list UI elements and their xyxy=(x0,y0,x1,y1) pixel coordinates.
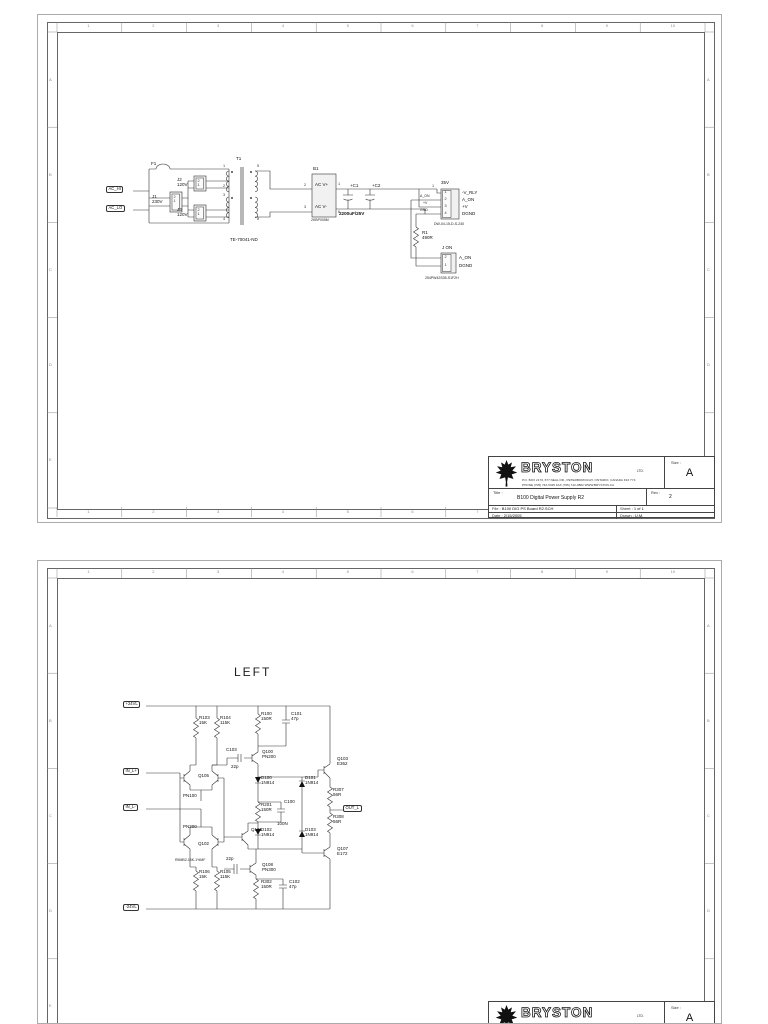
zone-label: 1 xyxy=(87,569,89,574)
file-name: B100 DIG PS Board R2.SCH xyxy=(502,506,554,511)
zone-label: B xyxy=(707,718,710,723)
zone-label: C xyxy=(49,813,52,818)
zone-label: 5 xyxy=(347,569,349,574)
zone-label: B xyxy=(707,172,710,177)
zone-label: 7 xyxy=(476,509,478,514)
zone-label: C xyxy=(49,267,52,272)
zone-label: 7 xyxy=(476,23,478,28)
zone-label: 6 xyxy=(411,569,413,574)
title-label: Title : xyxy=(493,490,503,495)
sheet-number: 1 of 1 xyxy=(634,506,644,511)
brand-logo-cell: BRYSTON LTD. P.O. BOX 2170, 677 NEAL DR.… xyxy=(489,1002,665,1024)
zone-label: D xyxy=(707,362,710,367)
zone-label: 1 xyxy=(87,509,89,514)
title-block: BRYSTON LTD. P.O. BOX 2170, 677 NEAL DR.… xyxy=(488,1001,715,1024)
zone-label: A xyxy=(707,77,710,82)
zone-label: 8 xyxy=(541,569,543,574)
brand-wordmark: BRYSTON xyxy=(521,1005,593,1020)
brand-address: P.O. BOX 2170, 677 NEAL DR., PETERBOROUG… xyxy=(522,478,635,482)
zone-label: A xyxy=(707,623,710,628)
brand-logo-cell: BRYSTON LTD. P.O. BOX 2170, 677 NEAL DR.… xyxy=(489,457,665,488)
maple-leaf-icon xyxy=(493,1004,520,1024)
zone-label: B xyxy=(49,172,52,177)
zone-label: 10 xyxy=(671,23,675,28)
zone-label: 3 xyxy=(217,23,219,28)
sheet-cell: Sheet : 1 of 1 xyxy=(617,506,714,512)
document-viewer[interactable]: { "page1": { "zones": {"cols":["1","2","… xyxy=(0,0,768,1024)
zone-label: A xyxy=(49,623,52,628)
zone-label: C xyxy=(707,813,710,818)
size-cell: Size : A xyxy=(665,457,714,488)
drawn-cell: Drawn : U.M. xyxy=(617,513,714,520)
brand-contact: PHONE (705) 742-5325 FAX (705) 742-0882 … xyxy=(522,483,614,487)
zone-label: 9 xyxy=(606,23,608,28)
brand-wordmark: BRYSTON xyxy=(521,460,593,475)
sheet-size: A xyxy=(665,467,714,479)
brand-suffix: LTD. xyxy=(637,1014,644,1018)
zone-label: 2 xyxy=(152,509,154,514)
zone-label: D xyxy=(49,362,52,367)
schematic-sheet-1: AC_HIAC_LOF1J1 230V2 1J2 120V2 1J3 120V2… xyxy=(37,14,722,523)
zone-label: 7 xyxy=(476,569,478,574)
zone-label: 6 xyxy=(411,23,413,28)
size-cell: Size : A xyxy=(665,1002,714,1024)
file-cell: File : B100 DIG PS Board R2.SCH xyxy=(489,506,617,512)
schematic-sheet-2: LEFT +24VLIN_L+IN_L--24VLOUT_LR103 15KR1… xyxy=(37,560,722,1024)
rev-cell: Rev : 2 xyxy=(647,489,714,505)
rev-number: 2 xyxy=(669,494,672,500)
zone-label: E xyxy=(49,457,52,462)
zone-label: D xyxy=(707,908,710,913)
zone-label: D xyxy=(49,908,52,913)
size-label: Size : xyxy=(671,460,681,465)
zone-label: 2 xyxy=(152,23,154,28)
size-label: Size : xyxy=(671,1005,681,1010)
zone-labels-page1: 1122334455667788991010AABBCCDDEE xyxy=(38,15,721,522)
zone-label: 4 xyxy=(282,23,284,28)
zone-label: 5 xyxy=(347,23,349,28)
zone-label: 8 xyxy=(541,23,543,28)
zone-label: E xyxy=(49,1003,52,1008)
zone-label: 10 xyxy=(671,569,675,574)
zone-label: 9 xyxy=(606,569,608,574)
sheet-size: A xyxy=(665,1012,714,1024)
zone-label: 1 xyxy=(87,23,89,28)
zone-label: C xyxy=(707,267,710,272)
maple-leaf-icon xyxy=(493,459,520,487)
drawing-title: B100 Digital Power Supply R2 xyxy=(517,495,584,501)
zone-label: 5 xyxy=(347,509,349,514)
zone-label: 2 xyxy=(152,569,154,574)
title-cell: Title : B100 Digital Power Supply R2 xyxy=(489,489,647,505)
brand-suffix: LTD. xyxy=(637,469,644,473)
zone-label: B xyxy=(49,718,52,723)
zone-label: 4 xyxy=(282,509,284,514)
rev-label: Rev : xyxy=(651,490,660,495)
zone-label: 6 xyxy=(411,509,413,514)
zone-label: 3 xyxy=(217,509,219,514)
date-cell: Date : 2/15/2005 xyxy=(489,513,617,520)
title-block: BRYSTON LTD. P.O. BOX 2170, 677 NEAL DR.… xyxy=(488,456,715,518)
date-value: 2/15/2005 xyxy=(504,513,522,518)
zone-label: A xyxy=(49,77,52,82)
zone-label: 3 xyxy=(217,569,219,574)
drawn-by: U.M. xyxy=(635,513,643,518)
zone-labels-page2: 12345678910AABBCCDDEE xyxy=(38,561,721,1023)
zone-label: 4 xyxy=(282,569,284,574)
